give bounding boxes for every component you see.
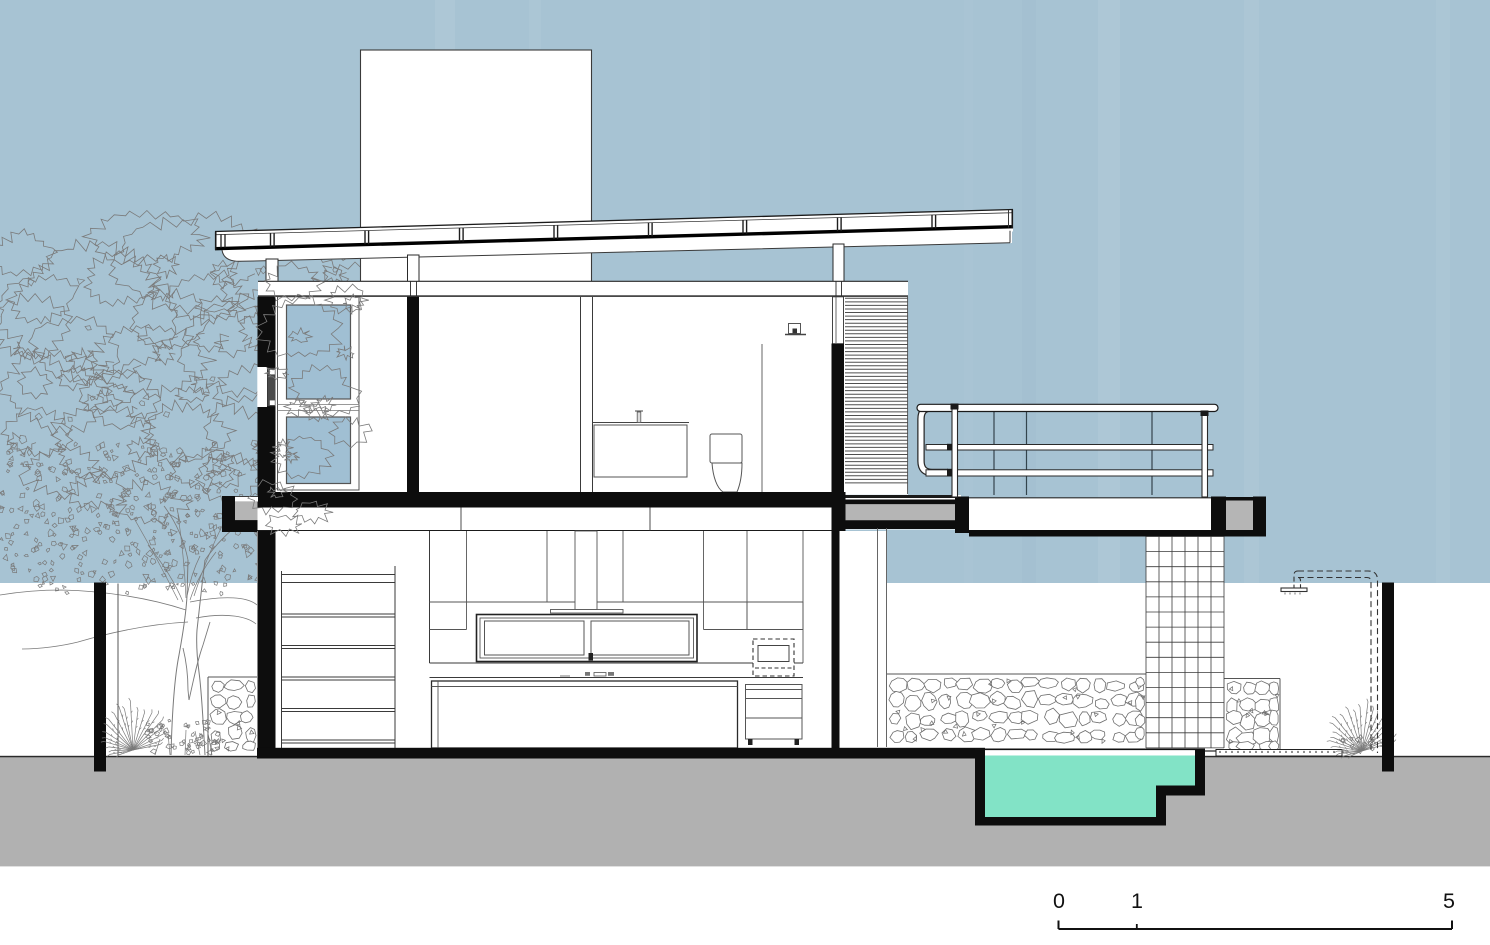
svg-text:5: 5 (1443, 889, 1455, 913)
svg-text:0: 0 (1053, 889, 1065, 913)
svg-text:1: 1 (1131, 889, 1143, 913)
